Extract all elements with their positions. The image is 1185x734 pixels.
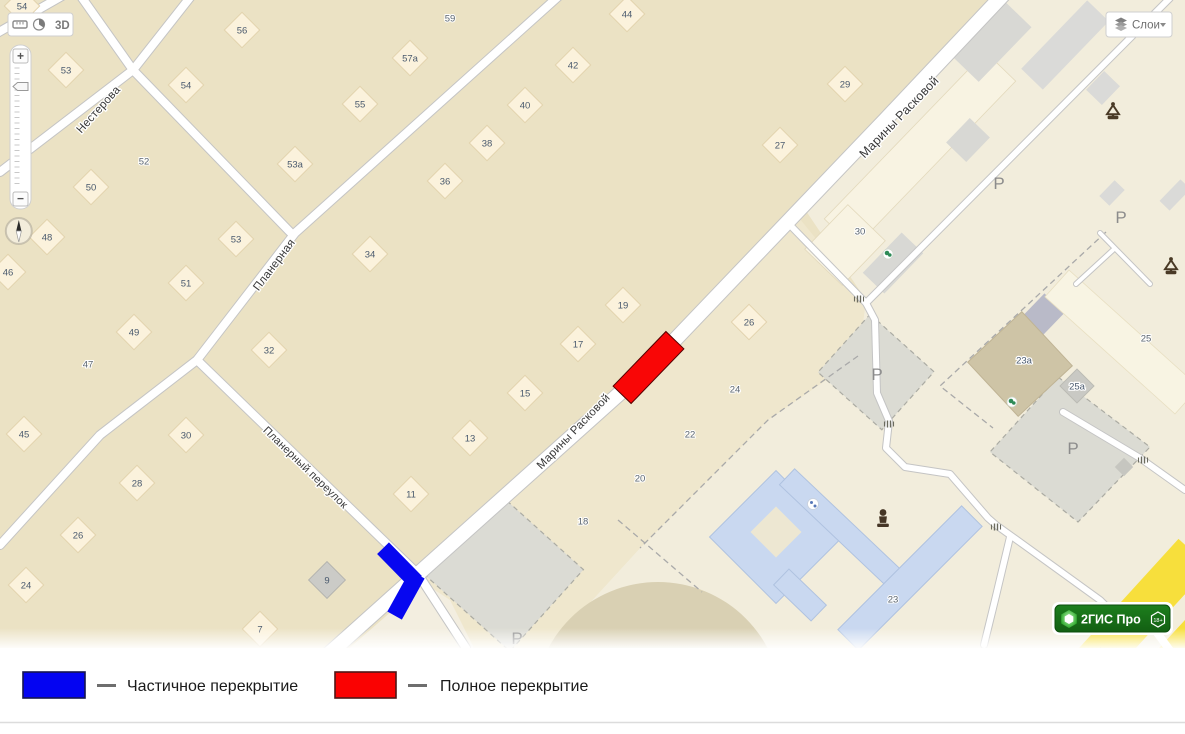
svg-text:30: 30 — [181, 431, 192, 442]
svg-text:38: 38 — [482, 139, 493, 150]
svg-text:13: 13 — [465, 434, 476, 445]
svg-text:45: 45 — [19, 430, 30, 441]
svg-text:53: 53 — [231, 235, 242, 246]
svg-text:59: 59 — [445, 14, 456, 25]
svg-text:29: 29 — [840, 80, 851, 91]
svg-text:23: 23 — [888, 595, 899, 606]
svg-text:2ГИС Про: 2ГИС Про — [1081, 613, 1141, 627]
svg-text:24: 24 — [21, 581, 32, 592]
svg-text:25а: 25а — [1069, 382, 1086, 393]
svg-text:40: 40 — [520, 101, 531, 112]
svg-text:Полное перекрытие: Полное перекрытие — [440, 678, 588, 695]
svg-text:17: 17 — [573, 340, 584, 351]
svg-text:3D: 3D — [55, 20, 70, 32]
svg-text:34: 34 — [365, 250, 376, 261]
svg-text:36: 36 — [440, 177, 451, 188]
svg-text:51: 51 — [181, 279, 192, 290]
svg-text:Частичное перекрытие: Частичное перекрытие — [127, 678, 298, 695]
svg-text:49: 49 — [129, 328, 140, 339]
svg-text:47: 47 — [83, 360, 94, 371]
svg-text:P: P — [1067, 439, 1078, 458]
svg-text:19: 19 — [618, 301, 629, 312]
svg-text:54: 54 — [181, 81, 192, 92]
svg-text:−: − — [17, 192, 24, 206]
svg-text:52: 52 — [139, 157, 150, 168]
svg-text:57а: 57а — [402, 54, 419, 65]
svg-text:54: 54 — [17, 2, 28, 13]
svg-text:23а: 23а — [1016, 356, 1033, 367]
svg-text:44: 44 — [622, 10, 633, 21]
svg-text:24: 24 — [730, 385, 741, 396]
svg-text:28: 28 — [132, 479, 143, 490]
svg-text:53а: 53а — [287, 160, 304, 171]
svg-text:48: 48 — [42, 233, 53, 244]
svg-text:27: 27 — [775, 141, 786, 152]
svg-text:20: 20 — [635, 474, 646, 485]
svg-text:P: P — [871, 365, 882, 384]
svg-text:9: 9 — [324, 576, 329, 587]
svg-text:18: 18 — [578, 517, 589, 528]
svg-text:50: 50 — [86, 183, 97, 194]
svg-text:15: 15 — [520, 389, 531, 400]
svg-text:P: P — [1115, 208, 1126, 227]
svg-text:22: 22 — [685, 430, 696, 441]
svg-text:18+: 18+ — [1153, 618, 1162, 624]
svg-text:26: 26 — [744, 318, 755, 329]
svg-text:P: P — [993, 174, 1004, 193]
svg-text:46: 46 — [3, 268, 14, 279]
svg-text:32: 32 — [264, 346, 275, 357]
svg-text:Слои: Слои — [1132, 20, 1160, 32]
svg-text:+: + — [17, 49, 24, 63]
svg-text:11: 11 — [406, 490, 416, 501]
svg-text:42: 42 — [568, 61, 579, 72]
svg-text:30: 30 — [855, 227, 866, 238]
svg-text:56: 56 — [237, 26, 248, 37]
svg-text:53: 53 — [61, 66, 72, 77]
svg-text:26: 26 — [73, 531, 84, 542]
svg-text:25: 25 — [1141, 334, 1152, 345]
svg-text:55: 55 — [355, 100, 366, 111]
